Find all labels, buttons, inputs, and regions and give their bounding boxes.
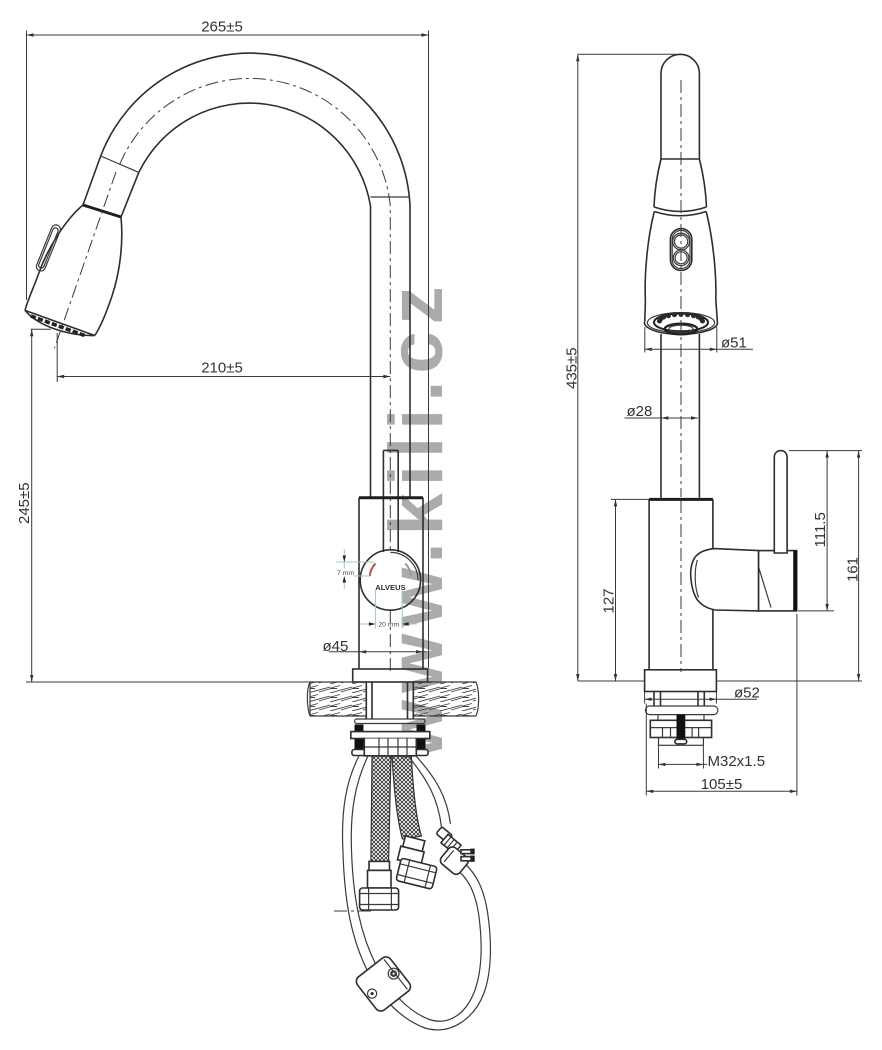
- svg-text:ALVEUS: ALVEUS: [375, 583, 405, 592]
- svg-text:ø52: ø52: [734, 685, 760, 702]
- svg-text:111.5: 111.5: [812, 512, 829, 547]
- svg-text:ø45: ø45: [323, 638, 349, 655]
- svg-text:7 mm: 7 mm: [337, 570, 354, 577]
- svg-text:ø28: ø28: [627, 403, 653, 420]
- svg-text:435±5: 435±5: [564, 347, 581, 389]
- svg-text:M32x1.5: M32x1.5: [708, 753, 766, 770]
- svg-text:127: 127: [601, 588, 618, 613]
- svg-text:161: 161: [845, 557, 862, 582]
- svg-text:245±5: 245±5: [16, 482, 33, 524]
- svg-text:265±5: 265±5: [201, 19, 243, 36]
- svg-text:20 mm: 20 mm: [378, 622, 399, 629]
- svg-text:ø51: ø51: [721, 335, 747, 352]
- svg-text:105±5: 105±5: [701, 776, 743, 793]
- svg-text:210±5: 210±5: [201, 360, 243, 377]
